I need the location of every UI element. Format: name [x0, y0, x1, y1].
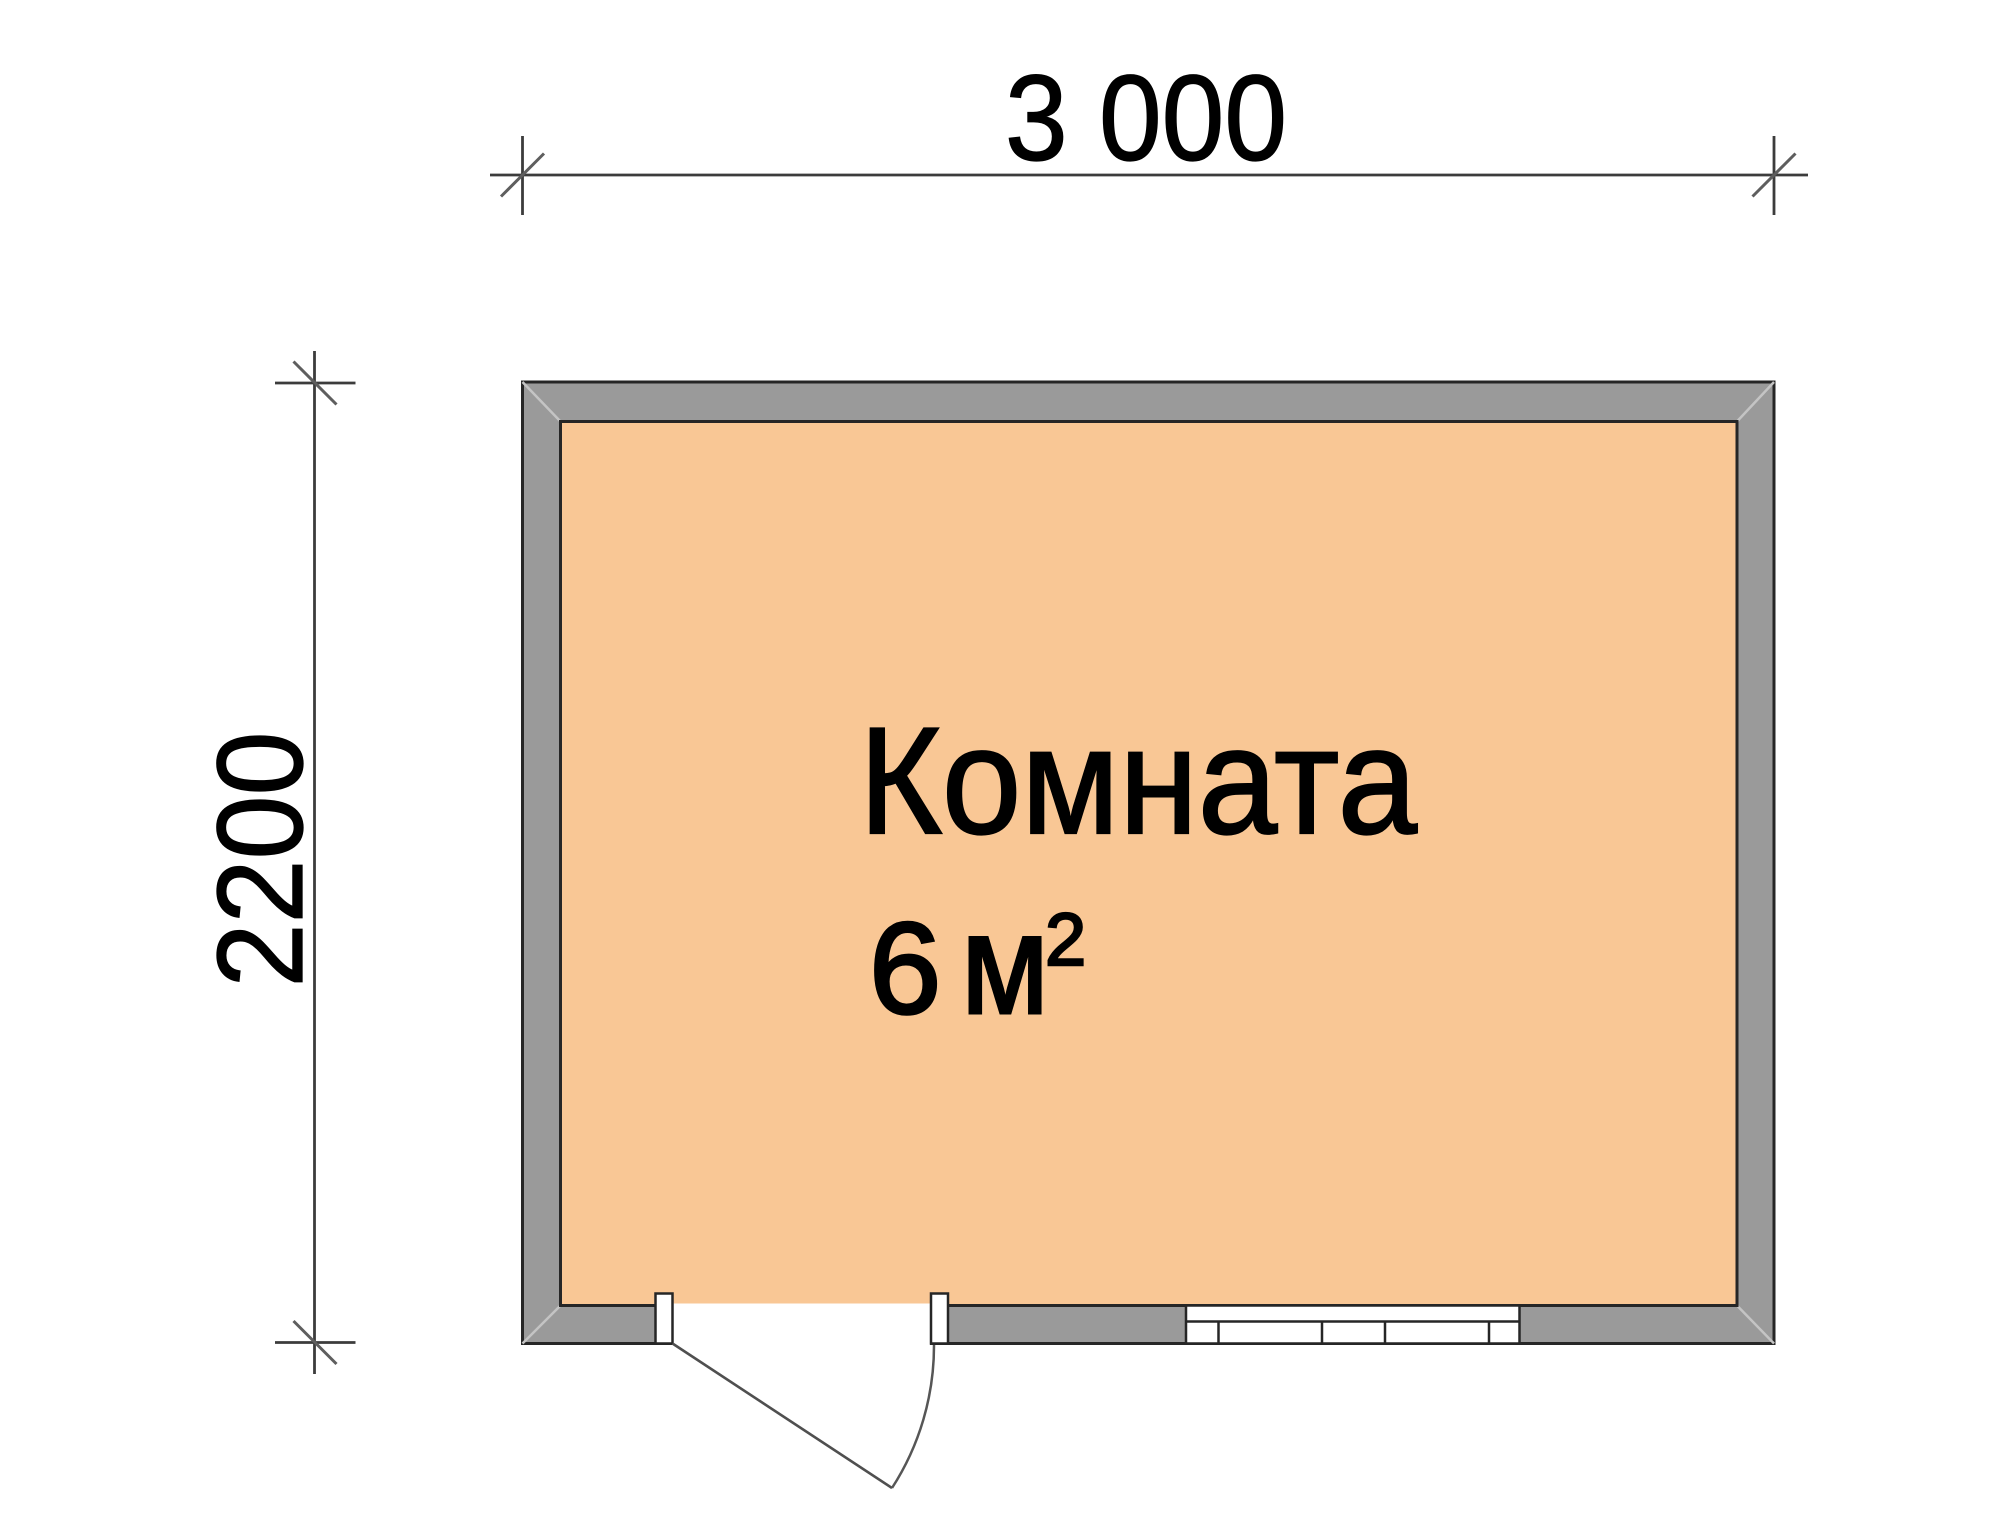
svg-text:2: 2 [1045, 898, 1086, 981]
svg-text:6: 6 [869, 895, 941, 1041]
svg-text:2200: 2200 [192, 732, 328, 988]
svg-text:Комната: Комната [859, 696, 1417, 866]
svg-text:3 000: 3 000 [1005, 50, 1287, 186]
svg-text:м: м [961, 885, 1049, 1044]
